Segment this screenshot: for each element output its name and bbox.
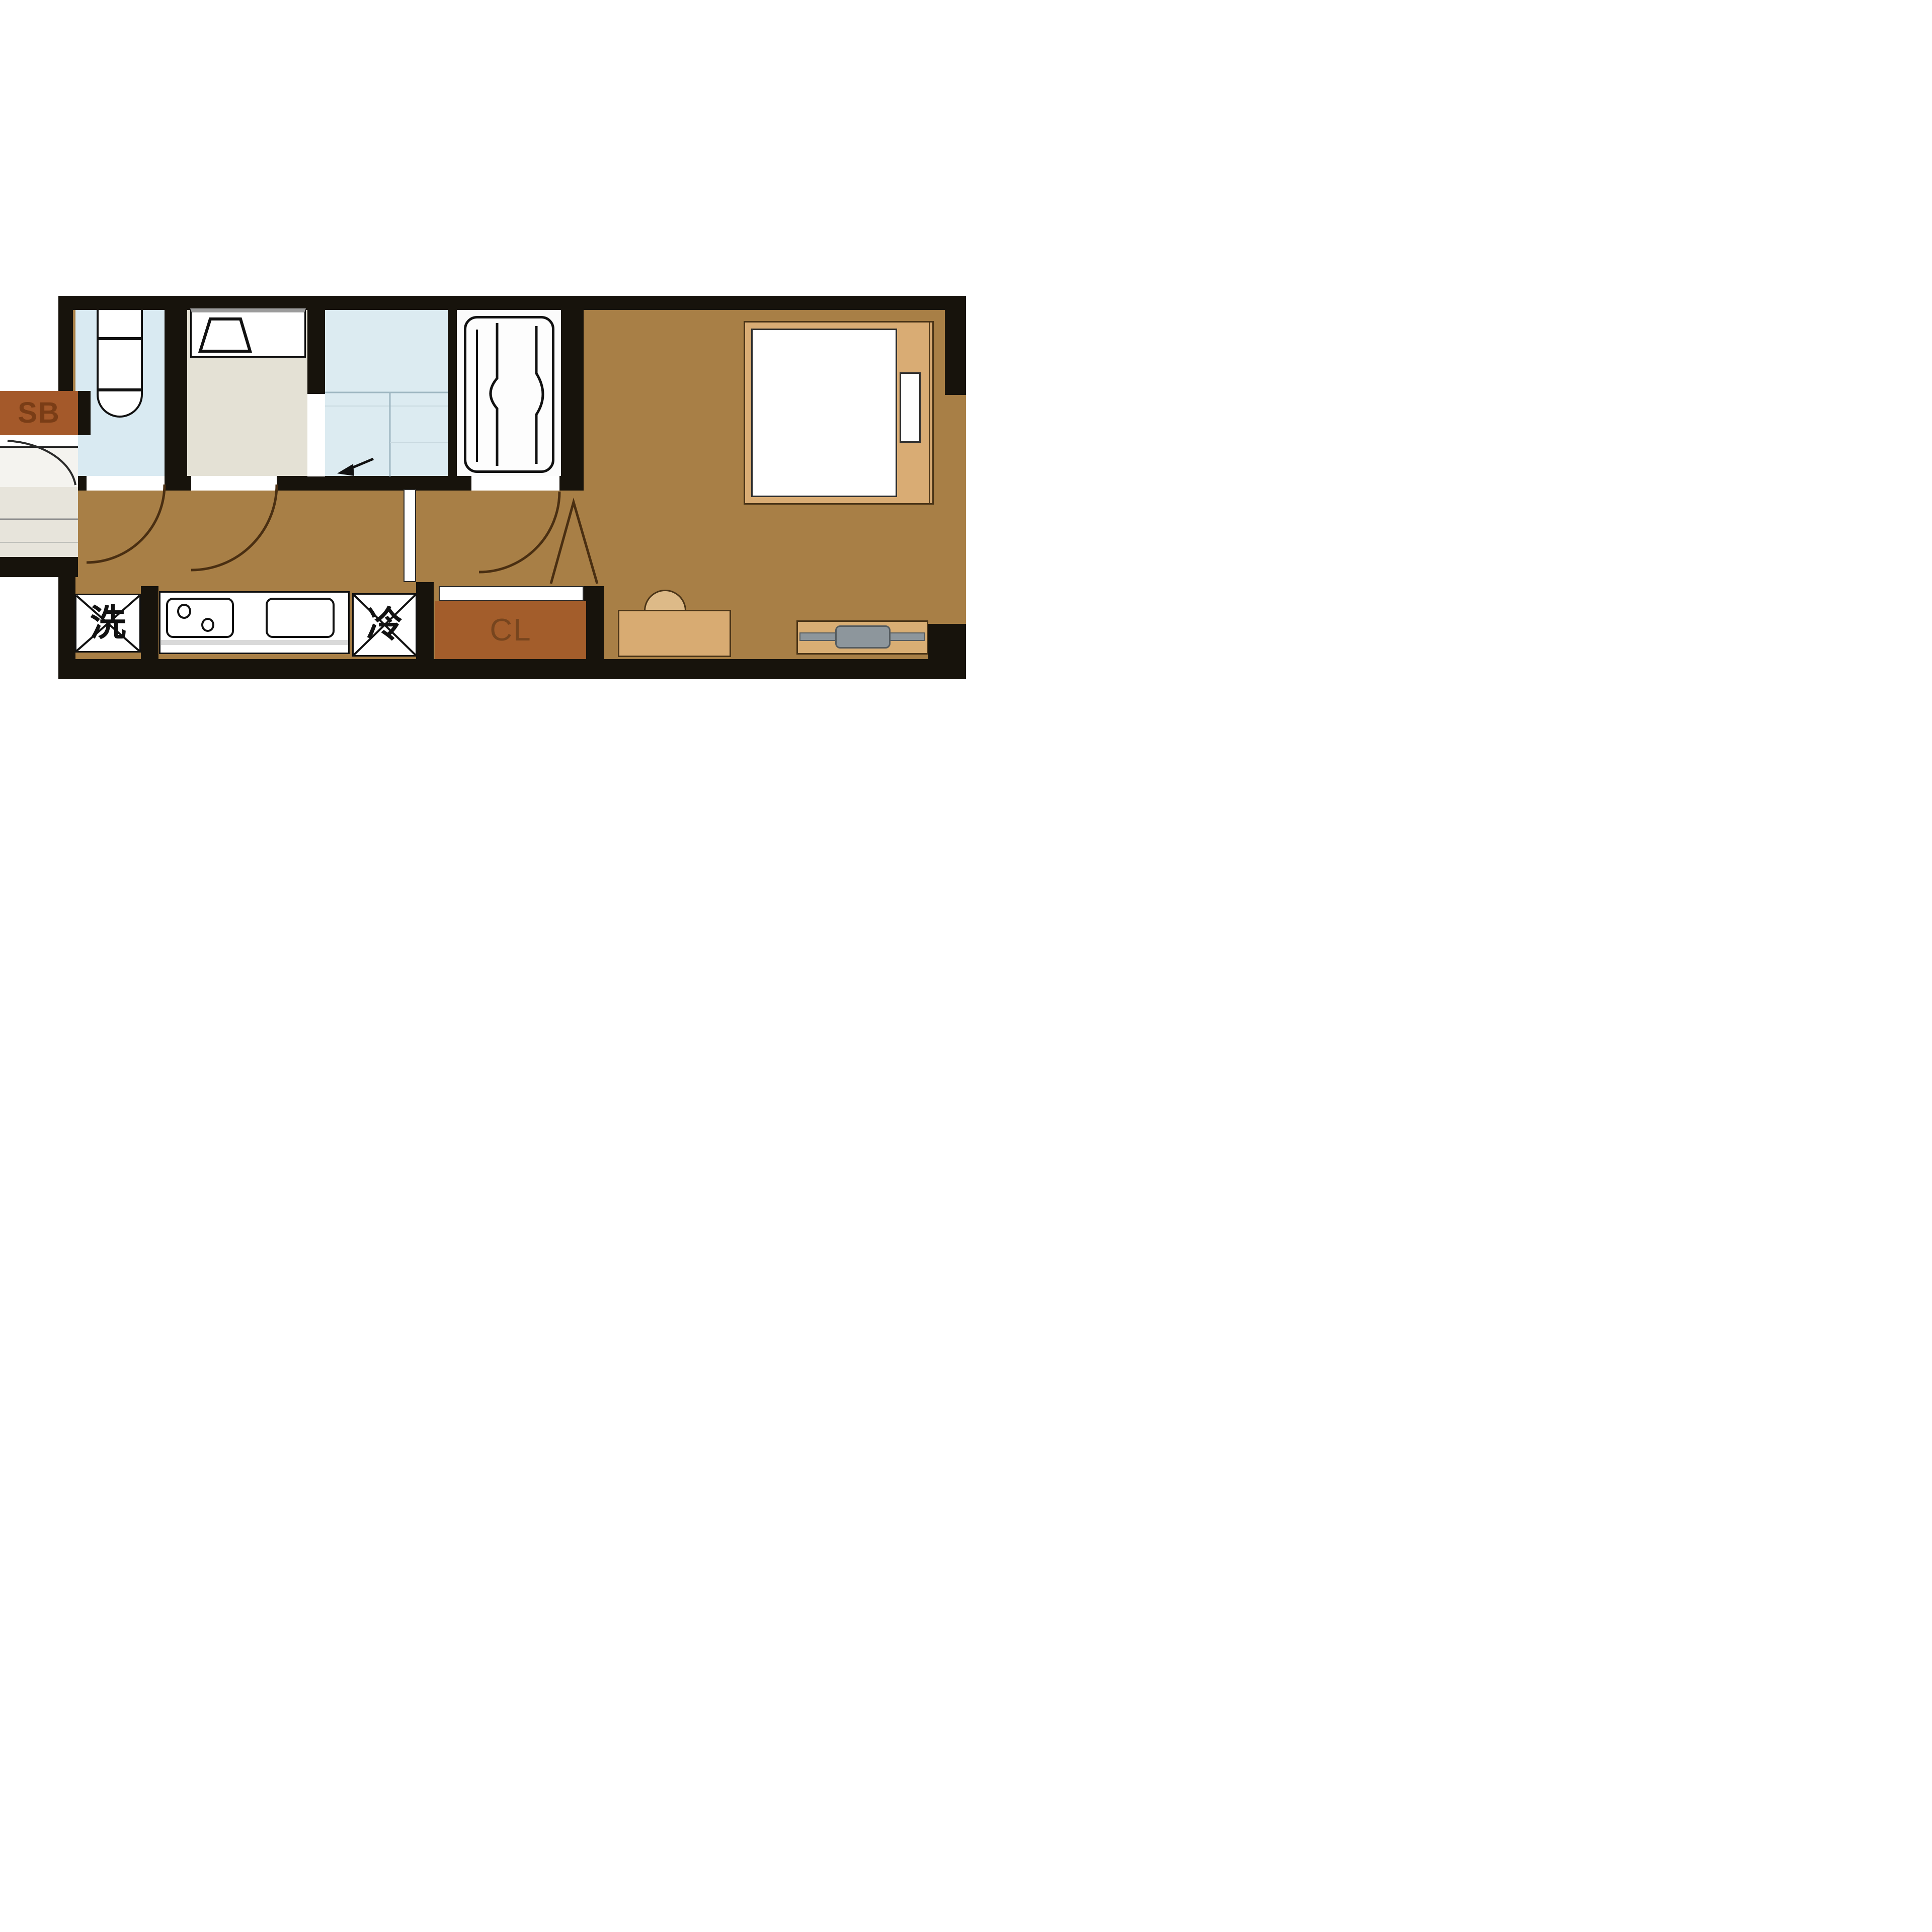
desk-icon xyxy=(618,610,731,657)
bed-headboard-line xyxy=(929,323,930,503)
wall-right-top xyxy=(945,296,966,395)
wall-sb-stub xyxy=(78,391,91,435)
wall-toilet-washroom xyxy=(165,310,187,491)
hall-mainroom-opening xyxy=(404,489,416,582)
genkan-floor xyxy=(0,487,78,557)
bathtub-icon xyxy=(464,316,554,473)
bed-mattress xyxy=(751,329,897,497)
wall-bath-mainroom xyxy=(561,310,584,491)
washbasin-counter xyxy=(190,308,306,358)
toilet-tank-line xyxy=(97,337,143,340)
kitchen-sink-icon xyxy=(266,598,335,638)
bed-pillow xyxy=(900,372,921,443)
closet-label: CL xyxy=(435,601,586,659)
shoe-box: SB xyxy=(0,391,78,435)
kitchen-counter-edge xyxy=(161,640,348,645)
washing-machine-pan: 洗 xyxy=(75,594,141,653)
stove-icon xyxy=(166,598,234,638)
wall-doorband-4 xyxy=(559,476,584,491)
tv-icon xyxy=(835,625,891,649)
wall-top xyxy=(58,296,945,310)
wall-doorband-2 xyxy=(165,476,191,491)
bathroom-door-opening xyxy=(471,476,559,491)
closet-door-strip xyxy=(439,586,584,601)
refrigerator-slot: 冷 xyxy=(352,593,417,657)
entrance-door-frame xyxy=(0,435,78,448)
toilet-door-opening xyxy=(87,476,165,491)
closet-box: CL xyxy=(435,601,586,659)
wall-left xyxy=(58,296,73,391)
floorplan-canvas: SB 洗 冷 CL xyxy=(0,0,966,966)
wall-shower-bath xyxy=(448,310,457,476)
stove-burner-2 xyxy=(201,618,214,632)
refrigerator-label: 冷 xyxy=(354,595,416,655)
wall-washer-counter xyxy=(141,586,158,659)
stove-burner-1 xyxy=(177,604,191,619)
washer-label: 洗 xyxy=(76,595,139,651)
shoe-box-label: SB xyxy=(0,391,78,435)
entrance-floor xyxy=(0,448,78,487)
toilet-icon xyxy=(97,310,143,418)
washroom-door-opening xyxy=(191,476,277,491)
toilet-seat-line xyxy=(97,388,143,391)
wall-washroom-shower-upper xyxy=(307,310,325,394)
washroom-shower-opening xyxy=(307,394,325,476)
wall-doorband-3 xyxy=(277,476,471,491)
wall-left-lower-column xyxy=(58,557,75,677)
wall-bottom xyxy=(58,659,928,679)
wall-fridge-closet xyxy=(416,582,434,659)
wall-bottom-right-corner xyxy=(928,624,966,679)
wall-closet-right xyxy=(584,586,604,659)
shower-room-floor xyxy=(325,310,448,476)
